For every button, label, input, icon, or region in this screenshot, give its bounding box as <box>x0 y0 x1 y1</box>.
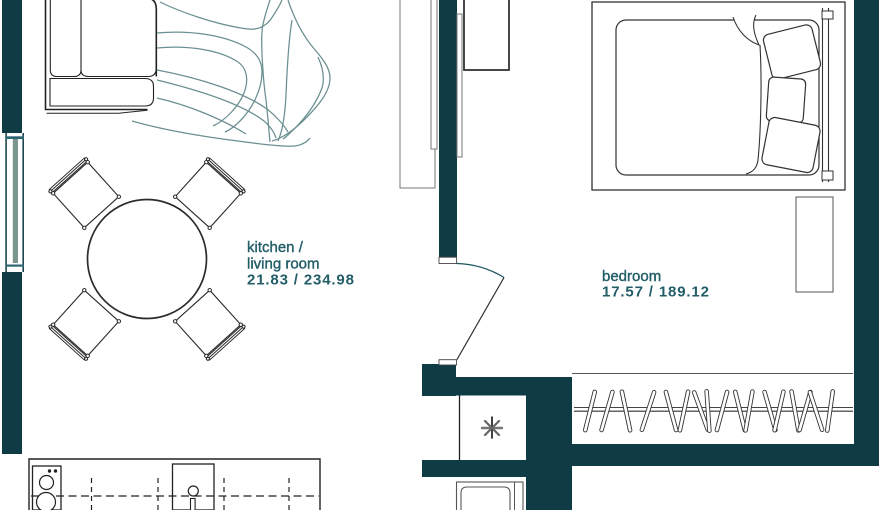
svg-text:living room: living room <box>247 255 320 272</box>
svg-text:17.57 / 189.12: 17.57 / 189.12 <box>602 284 710 301</box>
svg-text:21.83 / 234.98: 21.83 / 234.98 <box>247 272 355 289</box>
svg-text:bedroom: bedroom <box>602 268 661 285</box>
svg-text:kitchen /: kitchen / <box>247 239 304 256</box>
